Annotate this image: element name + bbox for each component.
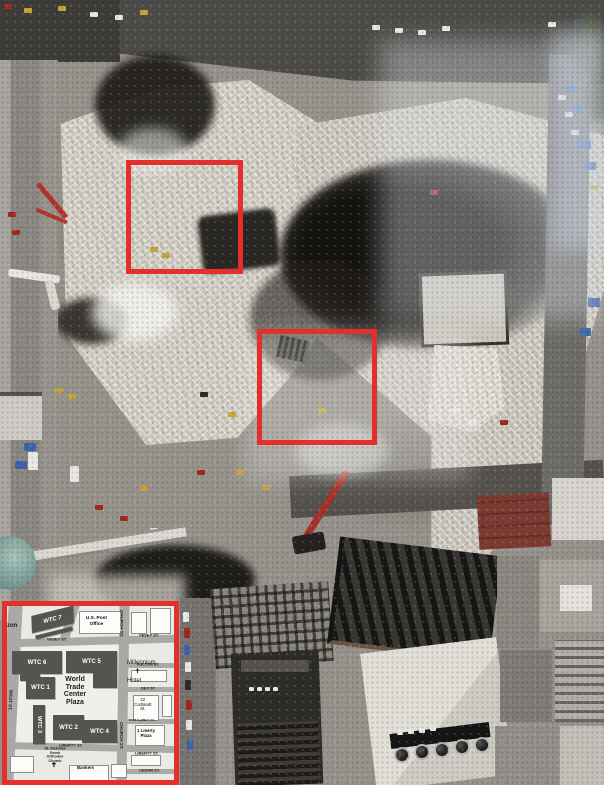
map-label-wtc6: WTC 6 [28,660,47,666]
blue-tarp [15,461,27,469]
equipment-dot [58,6,66,11]
map-label-wtc2: WTC 2 [59,725,78,731]
map-label-post-office: U.S. Post Office [80,616,113,627]
vehicle-dot [8,212,16,217]
sign-panel [419,728,425,733]
equipment-dot [4,4,12,9]
map-building-22-cortlandt: 22 Cortlandt St. [133,695,159,721]
blue-tarp [580,328,591,336]
edge-fragment-text: zon [7,623,17,629]
equipment-dot [200,392,208,397]
equipment-dot [140,10,148,15]
city-block-white-roof [560,585,592,611]
parked-car [187,740,193,750]
roof-vent [414,744,430,760]
blue-tarp [24,443,36,451]
parked-car [183,612,189,622]
roof-marking [273,687,278,691]
map-building-post-office: U.S. Post Office [79,611,122,634]
map-street-label-liberty-left: LIBERTY ST. [59,744,83,748]
roof-vent [474,737,490,753]
aerial-photo-ground-zero: WTC 7 WTC 6 WTC 5 WTC 1 WTC 3 WTC 2 WTC … [0,0,604,785]
church-cross-icon: ✝ [51,761,57,769]
map-label-wtc1: WTC 1 [31,685,50,691]
striped-roof-lower [237,721,321,785]
equipment-dot [68,394,76,399]
parked-car [185,662,191,672]
chapel-icon: ✝ [135,668,140,675]
equipment-dot [236,470,244,475]
city-block [495,726,557,785]
vehicle-dot [28,452,38,470]
vehicle-dot [395,28,403,33]
smoke-haze-edge [552,30,604,250]
map-building-wtc6: WTC 6 [12,651,62,674]
vehicle-dot [12,230,20,235]
map-building-wtc4: WTC 4 [82,720,117,743]
map-street-label-cedar: CEDAR ST. [139,769,160,773]
roof-vent [434,742,450,758]
parked-car [184,628,190,638]
roof-vent [454,739,470,755]
map-label-wtc4: WTC 4 [90,729,109,735]
inset-map: WTC 7 WTC 6 WTC 5 WTC 1 WTC 3 WTC 2 WTC … [2,601,179,785]
vehicle-dot [418,30,426,35]
map-label-bankers: Bankers [77,766,94,771]
city-block [500,650,552,722]
map-building-1-liberty-plaza: 1 Liberty Plaza [135,725,165,746]
white-roof-building [360,637,513,785]
map-building-wtc3: WTC 3 [33,705,45,744]
map-street-label-cortlandt: CORTLANDT ST. [129,719,155,722]
millennium-roof-band [241,660,309,672]
city-block [560,726,604,785]
vehicle-dot [70,466,79,482]
map-street-label-liberty-right: LIBERTY ST. [135,752,159,756]
map-label-wtc-plaza: World Trade Center Plaza [56,676,94,706]
vehicle-dot [90,12,98,17]
annotation-box-lower [257,329,377,445]
left-edge-building [0,392,42,440]
equipment-dot [140,486,148,491]
equipment-dot [197,470,205,475]
vehicle-dot [95,505,103,510]
equipment-dot [24,8,32,13]
parked-car [185,680,191,690]
map-label-wtc5: WTC 5 [82,659,101,665]
vehicle-dot [500,420,508,425]
map-label-wtc3: WTC 3 [36,716,42,733]
map-label-1-liberty-plaza: 1 Liberty Plaza [137,729,155,738]
map-street-label-vesey-right: VESEY ST. [139,634,159,638]
map-street-label-church-upper: CHURCH ST. [119,610,124,637]
sign-panel [408,729,414,734]
parked-car [186,720,192,730]
map-building-wtc2: WTC 2 [53,715,84,740]
equipment-dot [55,388,63,393]
map-outline-building [131,612,147,634]
map-label-millennium-hotel: Millennium Hotel [127,651,161,687]
map-street-label-fulton: FULTON ST. [137,663,160,667]
vehicle-dot [442,26,450,31]
annotation-box-upper [126,160,243,274]
map-label-edge-fragment: zon [7,614,19,632]
sign-panel [430,726,436,731]
equipment-dot [262,485,270,490]
map-street-label-church-lower: CHURCH ST. [119,722,124,749]
vehicle-dot [372,25,380,30]
crane-cab [292,531,327,554]
map-label-22-cortlandt: 22 Cortlandt St. [134,698,152,712]
parked-car [186,700,192,710]
map-building-wtc1: WTC 1 [26,677,55,699]
sign-panel [397,730,403,735]
map-street-label-vesey-left: VESEY ST. [47,638,67,642]
map-outline-building [131,755,161,766]
map-outline-building [150,608,171,634]
bottom-street-vertical [180,598,216,785]
white-roof-small [552,478,604,540]
vehicle-dot [115,15,123,20]
roof-marking [257,687,262,691]
red-roof-building [477,492,552,550]
map-outline-building [162,695,172,717]
equipment-dot [228,412,236,417]
city-block-windows [555,640,604,722]
map-street-label-dey: DEY ST. [141,687,156,691]
smoke-plume [92,283,177,341]
map-outline-building [10,756,34,773]
roof-marking [265,687,270,691]
map-label-wtc7: WTC 7 [43,614,61,625]
vehicle-dot [120,516,128,521]
parked-car [184,645,190,655]
map-building-wtc5-leg [93,673,117,688]
roof-marking [249,687,254,691]
map-outline-building [111,764,127,778]
map-building-wtc5: WTC 5 [66,651,117,673]
city-block [497,556,539,648]
vehicle-dot [548,22,556,27]
map-building-bankers: Bankers [69,765,109,783]
map-label-90-west: 90 West St. [9,774,41,785]
